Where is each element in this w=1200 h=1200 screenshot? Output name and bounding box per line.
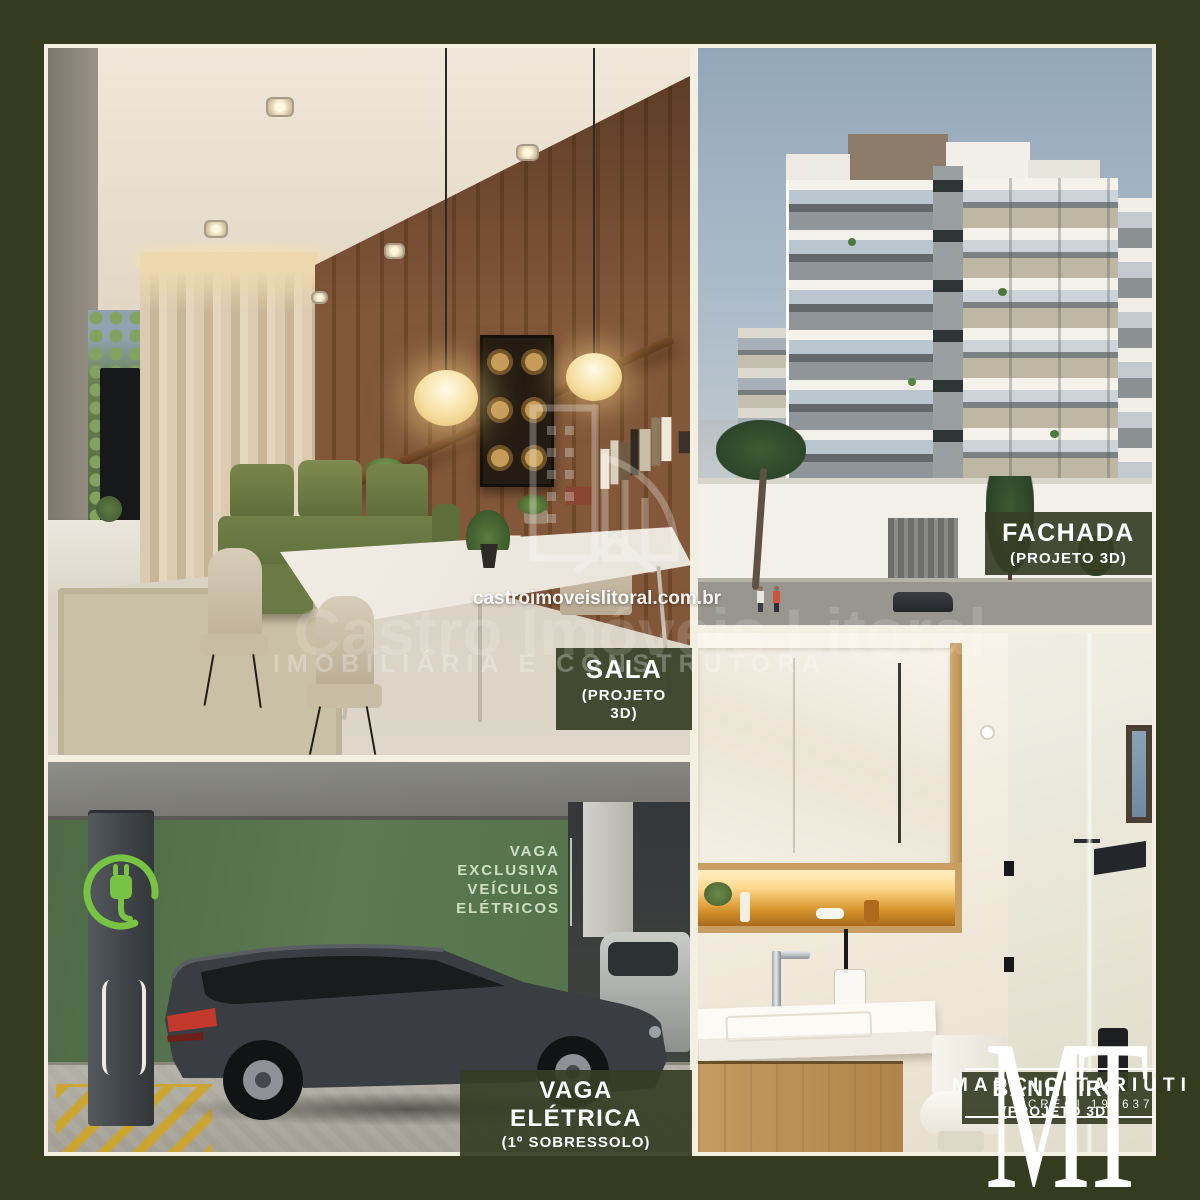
ceiling-spotlight (204, 220, 228, 238)
basin-outline (725, 1011, 872, 1042)
pendant-cord (593, 48, 595, 358)
sign-vertical-rule (570, 838, 572, 926)
glass-clamp (1004, 861, 1014, 876)
ceiling-spotlight (516, 144, 539, 161)
sign-line: VAGA (378, 842, 560, 861)
book (566, 487, 592, 505)
shower-window (1126, 725, 1152, 823)
pendant-cord (445, 48, 447, 374)
ceiling-spotlight (384, 243, 405, 259)
balcony-plant (1050, 430, 1059, 438)
pendant-lamp (566, 353, 622, 401)
mirror-reflection-rail (898, 663, 901, 843)
niche-bottle (740, 892, 750, 922)
chair-back (208, 548, 262, 642)
ceiling-downlight (980, 725, 995, 740)
ceiling-spotlight (266, 97, 294, 117)
shelf-plant (518, 495, 548, 515)
label-vaga: VAGA ELÉTRICA (1º SOBRESSOLO) (460, 1070, 692, 1159)
broker-logo: M T MARCIO TARIUTI CRECI 195637 (930, 995, 1200, 1200)
shelf-box (679, 431, 690, 453)
label-vaga-subtitle: (1º SOBRESSOLO) (470, 1134, 682, 1152)
sofa-cushion (230, 464, 294, 522)
faucet-body (772, 951, 781, 1013)
ceiling-spotlight (311, 291, 328, 304)
chair-seat (306, 684, 382, 708)
broker-name: MARCIO TARIUTI (952, 1075, 1192, 1097)
pendant-lamp (414, 370, 478, 426)
label-sala-subtitle: (PROJETO 3D) (566, 687, 682, 723)
garage-wall-sign: VAGA EXCLUSIVA VEÍCULOS ELÉTRICOS (378, 842, 560, 922)
chair-back (316, 596, 374, 692)
niche-plant (704, 882, 732, 906)
pedestrian-body (757, 591, 764, 603)
charger-handle (102, 980, 118, 1075)
lighted-niche (698, 863, 962, 933)
soap-dispenser-hook (844, 929, 848, 973)
pedestrian-legs (758, 603, 763, 612)
mirror (698, 648, 950, 863)
photo-collage: VAGA EXCLUSIVA VEÍCULOS ELÉTRICOS SALA (… (0, 0, 1200, 1200)
gate (888, 518, 958, 578)
book (620, 442, 630, 480)
sign-line: ELÉTRICOS (378, 899, 560, 918)
glass-clamp (1004, 957, 1014, 972)
niche-towel (816, 908, 844, 919)
broker-rule-bottom (965, 1116, 1155, 1118)
dining-chair (194, 548, 278, 708)
label-sala: SALA (PROJETO 3D) (556, 648, 692, 730)
broker-rule-top (965, 1068, 1155, 1070)
sign-line: VEÍCULOS (378, 880, 560, 899)
book (610, 440, 618, 484)
sofa-cushion (366, 464, 428, 522)
broker-creci: CRECI 195637 (1028, 1099, 1153, 1111)
sign-line: EXCLUSIVA (378, 861, 560, 880)
book (661, 417, 671, 461)
label-fachada: FACHADA (PROJETO 3D) (985, 512, 1152, 575)
garage-pillar-white (583, 802, 633, 937)
book (640, 429, 651, 471)
pedestrian-body (773, 591, 780, 603)
mirror-reflection-door-line (793, 658, 795, 853)
countertop (698, 1001, 937, 1061)
chair-leg (204, 654, 215, 706)
dining-chair (298, 596, 394, 755)
pedestrian (772, 586, 781, 612)
label-fachada-title: FACHADA (995, 519, 1142, 548)
balcony-plant (998, 288, 1007, 296)
table-leg (478, 604, 482, 722)
book (600, 449, 609, 489)
book (630, 429, 638, 475)
pedestrian (756, 586, 765, 612)
book (651, 418, 660, 466)
niche-amber-glass (864, 900, 879, 922)
label-vaga-title: VAGA ELÉTRICA (470, 1077, 682, 1132)
label-sala-title: SALA (566, 655, 682, 685)
chair-leg (252, 654, 261, 708)
balcony-plant (908, 378, 916, 386)
building-left-face (786, 180, 933, 528)
sofa-cushion (298, 460, 362, 520)
sideboard-plant (96, 496, 122, 522)
label-fachada-subtitle: (PROJETO 3D) (995, 550, 1142, 568)
chair-seat (200, 634, 268, 656)
parked-car (893, 592, 953, 612)
balcony-plant (848, 238, 856, 246)
chair-leg (366, 706, 376, 755)
wall-art-gold-circles (480, 335, 554, 487)
vanity-cabinet-wood (698, 1061, 903, 1152)
pedestrian-legs (774, 603, 779, 612)
building-core (933, 166, 963, 528)
chair-leg (309, 706, 321, 754)
